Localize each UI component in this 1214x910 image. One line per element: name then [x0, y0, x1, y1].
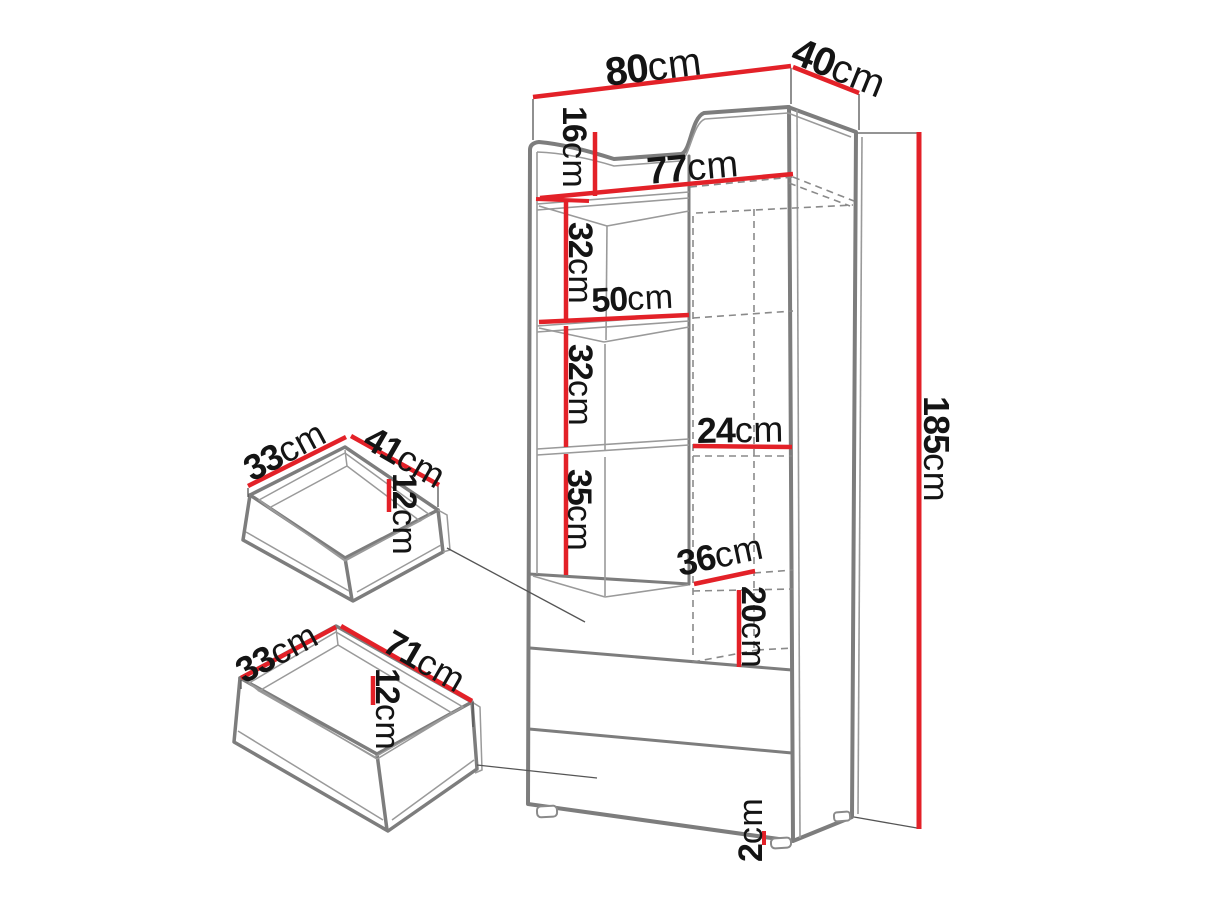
hidden-line	[793, 177, 854, 201]
drawer-small-face-line	[246, 532, 349, 591]
hidden-line	[693, 311, 793, 318]
label-niche-24: 24cm	[696, 408, 784, 451]
shelf-back-line	[607, 211, 689, 226]
label-depth-40: 40cm	[786, 30, 892, 107]
label-drawer-small-12: 12cm	[385, 473, 423, 555]
drawer-small-back-corner	[345, 450, 347, 466]
label-niche-36: 36cm	[673, 526, 767, 584]
drawer-large-body	[234, 678, 477, 831]
hidden-line	[696, 205, 853, 213]
extension-line	[854, 817, 917, 828]
label-drawer-large-12: 12cm	[368, 668, 406, 750]
drawer-large-face-line	[392, 760, 474, 820]
shelf-line	[537, 439, 689, 449]
label-niche-20: 20cm	[734, 586, 772, 668]
foot	[771, 837, 792, 848]
drawer-large-wall-seam	[452, 707, 463, 713]
cabinet-front-right-edge	[789, 107, 793, 840]
label-section-50: 50cm	[590, 278, 674, 320]
label-width-80: 80cm	[603, 39, 704, 94]
furniture-dimension-diagram: 80cm 40cm 16cm 77cm 32cm 50cm 32cm 35cm …	[0, 0, 1214, 910]
label-gap-32b: 32cm	[561, 344, 599, 426]
label-feet-2: 2cm	[732, 798, 770, 862]
label-gap-35: 35cm	[560, 469, 598, 551]
shelf-back-line	[604, 327, 689, 342]
drawers-top-back-line	[605, 585, 688, 597]
foot	[537, 805, 558, 817]
drawer-separator-2	[529, 729, 792, 753]
label-drawer-large-33: 33cm	[229, 614, 325, 691]
front-right-inner-edge	[797, 110, 800, 838]
back-right-inner-edge	[858, 137, 862, 814]
label-height-185: 185cm	[916, 396, 957, 502]
label-top-offset-16: 16cm	[555, 106, 593, 188]
foot	[834, 811, 851, 821]
shelf-line	[537, 445, 689, 455]
drawer-large-back-corner	[336, 628, 338, 645]
hidden-line	[754, 570, 793, 573]
label-interior-77: 77cm	[645, 143, 740, 193]
leader-line-large-drawer	[477, 765, 597, 778]
